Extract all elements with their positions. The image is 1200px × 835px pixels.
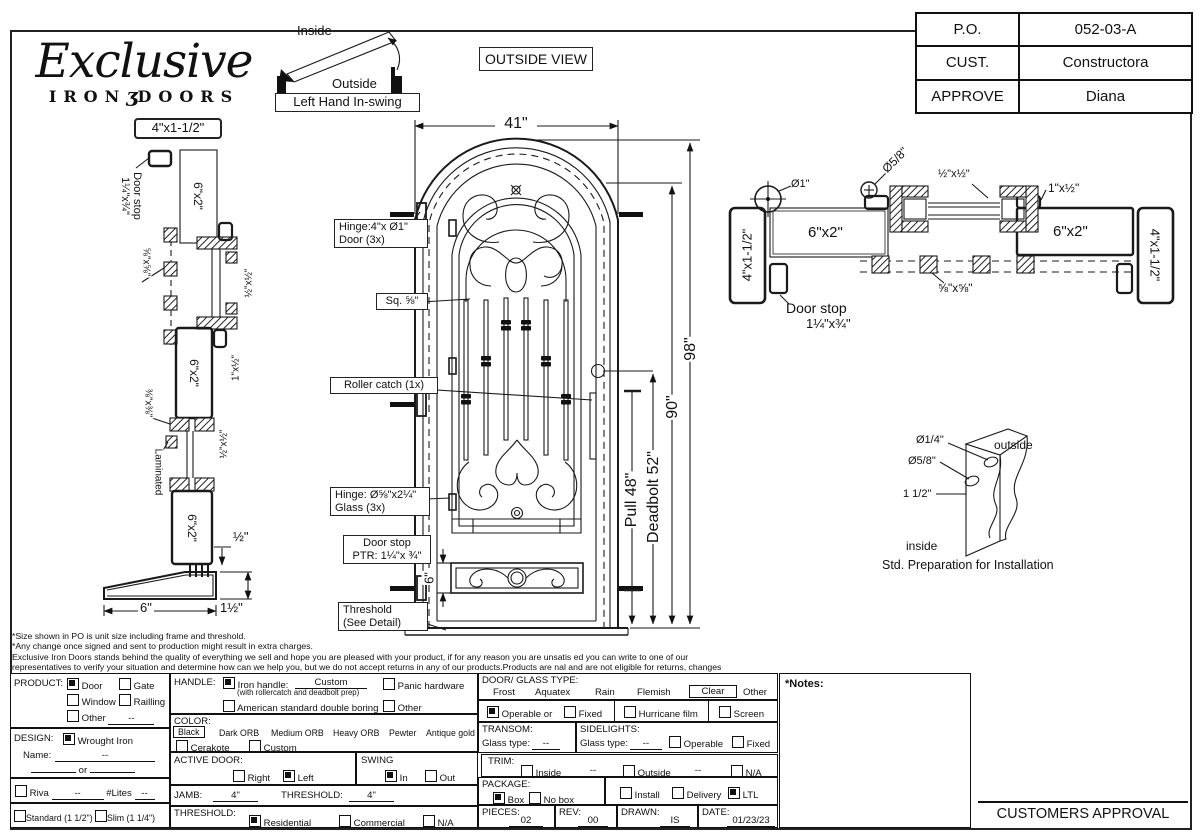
rs-anchor-label: ⅝"x⅝" (938, 282, 973, 296)
checkbox-screen[interactable] (719, 706, 731, 718)
color-heavy-orb[interactable]: Heavy ORB (333, 728, 379, 738)
color-pewter[interactable]: Pewter (389, 728, 416, 738)
checkbox-install[interactable] (620, 787, 632, 799)
lites-label: #Lites (106, 788, 132, 799)
transom-glass-label: Glass type: (482, 738, 530, 749)
checkbox-gate[interactable] (119, 678, 131, 690)
cust-value: Constructora (1019, 46, 1192, 79)
kick-panel-dim: 6" (422, 571, 437, 585)
rs-tube-left-label: 6"x2" (808, 224, 843, 241)
jamb-label: JAMB: (174, 790, 202, 801)
inst-dia58-label: Ø5/8" (908, 455, 936, 468)
checkbox-trim-inside[interactable] (521, 765, 533, 777)
brand-logo: Exclusive IRONʒDOORS (24, 34, 264, 107)
rev-value: 00 (578, 815, 608, 827)
design-name-field[interactable]: -- (55, 750, 155, 762)
jamb-box: JAMB: 4" THRESHOLD: 4" (170, 785, 478, 806)
door-height-total-dim: 98" (682, 336, 700, 361)
design-box: DESIGN: Wrought Iron Name: -- or (10, 728, 170, 778)
operable-divider-2 (708, 701, 709, 723)
product-label: PRODUCT: (14, 678, 63, 689)
checkbox-door[interactable] (67, 678, 79, 690)
checkbox-right[interactable] (233, 770, 245, 782)
checkbox-fixed[interactable] (564, 706, 576, 718)
checkbox-trim-outside[interactable] (623, 765, 635, 777)
handle-label: HANDLE: (174, 677, 216, 688)
trim-inside-field[interactable]: -- (567, 765, 619, 777)
checkbox-panic-hardware[interactable] (383, 678, 395, 690)
checkbox-color-custom[interactable] (249, 740, 261, 752)
date-box: DATE: 01/23/23 (698, 805, 778, 828)
checkbox-riva[interactable] (15, 785, 27, 797)
glass-rain[interactable]: Rain (595, 687, 615, 698)
rs-frame-left-label: 4"x1-1/2" (740, 228, 755, 283)
pieces-box: PIECES: 02 (478, 805, 555, 828)
approval-signature-line[interactable] (978, 801, 1188, 803)
shipping-box: Install Delivery LTL (605, 777, 778, 805)
inst-outside-label: outside (994, 439, 1033, 453)
swing-box: SWING In Out (356, 752, 478, 785)
checkbox-handle-other[interactable] (383, 700, 395, 712)
brand-name: Exclusive (24, 34, 264, 89)
roller-catch-callout: Roller catch (1x) (330, 377, 438, 394)
operable-divider-1 (614, 701, 615, 723)
door-width-dim: 41" (495, 115, 537, 133)
left-frame-size-label: 4"x1-1/2" (134, 118, 222, 139)
glass-frost[interactable]: Frost (493, 687, 515, 698)
rs-doorstop-label: Door stop (786, 300, 847, 316)
checkbox-window[interactable] (67, 694, 79, 706)
hinge-glass-callout: Hinge: Ø⅝"x2¼"Glass (3x) (330, 487, 430, 516)
riva-field[interactable]: -- (52, 788, 104, 800)
checkbox-product-other[interactable] (67, 710, 79, 722)
approve-value: Diana (1019, 80, 1192, 113)
sidelights-box: SIDELIGHTS: Glass type: -- Operable Fixe… (576, 722, 778, 753)
glass-other[interactable]: Other (743, 687, 767, 698)
checkbox-commercial[interactable] (339, 815, 351, 827)
glass-flemish[interactable]: Flemish (637, 687, 671, 698)
jamb-threshold-label: THRESHOLD: (281, 790, 343, 801)
swing-label: SWING (361, 755, 394, 766)
view-label: OUTSIDE VIEW (479, 47, 593, 71)
trim-box: TRIM: Inside -- Outside -- N/A (481, 754, 778, 777)
approve-label: APPROVE (916, 80, 1019, 113)
glass-type-box: DOOR/ GLASS TYPE: Frost Aquatex Rain Fle… (478, 673, 778, 700)
color-antique-gold[interactable]: Antique gold (426, 728, 475, 738)
notes-label: *Notes: (785, 678, 824, 690)
left-glass-stop-label: ½"x½" (219, 429, 230, 460)
left-transom-tube-label: ½"x½" (244, 268, 255, 299)
inst-caption: Std. Preparation for Installation (882, 558, 1054, 572)
or-rule-left (31, 771, 76, 773)
design-label: DESIGN: (14, 733, 53, 744)
trim-outside-field[interactable]: -- (674, 765, 722, 777)
color-black-option[interactable]: Black (173, 726, 205, 738)
glass-clear-option[interactable]: Clear (689, 685, 737, 698)
riva-box: Riva -- #Lites -- (10, 778, 170, 803)
approval-label: CUSTOMERS APPROVAL (978, 806, 1188, 822)
checkbox-railling[interactable] (119, 694, 131, 706)
rev-box: REV: 00 (555, 805, 617, 828)
or-rule-right (90, 771, 135, 773)
sidelights-glass-label: Glass type: (580, 738, 628, 749)
pieces-value: 02 (509, 815, 543, 827)
product-box: PRODUCT: Door Gate Window Railling Other… (10, 673, 170, 728)
checkbox-residential[interactable] (249, 815, 261, 827)
drawing-sheet: Exclusive IRONʒDOORS Inside Outside Left… (0, 0, 1200, 835)
left-threshold-height-dim: 1½" (220, 601, 243, 616)
or-label: or (79, 765, 88, 776)
door-stop-callout: Door stopPTR: 1¼"x ¾" (343, 535, 431, 564)
cust-label: CUST. (916, 46, 1019, 79)
date-value: 01/23/23 (727, 815, 775, 827)
transom-label: TRANSOM: (482, 724, 533, 735)
checkbox-standard[interactable] (14, 810, 26, 822)
left-tube-bottom-label: 6"x2" (185, 513, 199, 543)
checkbox-american-boring[interactable] (223, 700, 235, 712)
left-tube-top-label: 6"x2" (191, 181, 205, 211)
po-label: P.O. (916, 13, 1019, 46)
trim-label: TRIM: (488, 756, 514, 767)
lites-field[interactable]: -- (135, 788, 155, 800)
swing-caption: Left Hand In-swing (275, 93, 420, 112)
active-door-label: ACTIVE DOOR: (174, 755, 243, 766)
threshold-box: THRESHOLD: Residential Commercial N/A (170, 806, 478, 828)
color-medium-orb[interactable]: Medium ORB (271, 728, 324, 738)
po-table: P.O. 052-03-A CUST. Constructora APPROVE… (915, 12, 1193, 114)
checkbox-trim-na[interactable] (731, 765, 743, 777)
left-threshold-width-dim: 6" (138, 601, 154, 616)
rs-tube-right-label: 6"x2" (1053, 223, 1088, 240)
left-rail-bottom-label: ⅜"x⅜" (143, 388, 154, 419)
brand-subtitle: IRONʒDOORS (24, 83, 264, 107)
drawn-value: IS (660, 815, 690, 827)
checkbox-in[interactable] (385, 770, 397, 782)
rs-doorstop-size-label: 1¼"x¾" (806, 317, 851, 332)
left-anchor-label: ⅝"x⅝" (141, 247, 152, 278)
checkbox-operable[interactable] (487, 706, 499, 718)
threshold-callout: Threshold(See Detail) (338, 602, 428, 631)
checkbox-no-box[interactable] (529, 792, 541, 804)
checkbox-wrought-iron[interactable] (63, 733, 75, 745)
date-label: DATE: (702, 807, 730, 818)
left-doorstop-label: Door stop1¼"x¾" (119, 171, 143, 221)
package-label: PACKAGE: (482, 779, 530, 790)
left-glass-label: Laminated (153, 448, 164, 497)
sidelights-glass-field[interactable]: -- (630, 738, 662, 750)
checkbox-delivery[interactable] (672, 787, 684, 799)
jamb-threshold-field[interactable]: 4" (349, 790, 394, 802)
active-door-box: ACTIVE DOOR: Right Left (170, 752, 356, 785)
checkbox-sidelight-fixed[interactable] (732, 736, 744, 748)
checkbox-left[interactable] (283, 770, 295, 782)
swing-inside-label: Inside (297, 24, 332, 39)
transom-box: TRANSOM: Glass type: -- (478, 722, 576, 753)
scroll-glyph-icon: ʒ (126, 83, 137, 107)
checkbox-hurricane-film[interactable] (624, 706, 636, 718)
deadbolt-dim: Deadbolt 52" (645, 450, 663, 544)
package-box: PACKAGE: Box No box (478, 777, 605, 805)
transom-glass-field[interactable]: -- (532, 738, 560, 750)
left-tube-mid-label: 6"x2" (187, 358, 201, 388)
rs-stop-small-label: 1"x½" (1048, 182, 1079, 196)
rs-frame-right-label: 4"x1-1/2" (1148, 228, 1163, 283)
profile-box: Standard (1 1/2") Slim (1 1/4") (10, 803, 170, 828)
swing-outside-label: Outside (332, 77, 377, 92)
checkbox-box[interactable] (493, 792, 505, 804)
drawn-label: DRAWN: (621, 807, 660, 818)
left-gap-dim: ½" (233, 530, 248, 545)
checkbox-out[interactable] (425, 770, 437, 782)
po-value: 052-03-A (1019, 13, 1192, 46)
hinge-door-callout: Hinge:4"x Ø1"Door (3x) (334, 219, 428, 248)
threshold-label: THRESHOLD: (174, 808, 236, 819)
checkbox-cerakote[interactable] (176, 740, 188, 752)
product-other-field[interactable]: -- (108, 713, 154, 725)
color-dark-orb[interactable]: Dark ORB (219, 728, 259, 738)
color-box: COLOR: Black Dark ORB Medium ORB Heavy O… (170, 714, 478, 752)
checkbox-slim[interactable] (95, 810, 107, 822)
operable-box: Operable or Fixed Hurricane film Screen (478, 700, 778, 722)
jamb-field[interactable]: 4" (213, 790, 258, 802)
glass-type-label: DOOR/ GLASS TYPE: (482, 675, 578, 686)
checkbox-ltl[interactable] (728, 787, 740, 799)
drawn-box: DRAWN: IS (617, 805, 698, 828)
inst-offset-label: 1 1/2" (903, 488, 931, 501)
square-bar-callout: Sq. ⅝" (376, 293, 428, 310)
rs-transom-tube-label: ½"x½" (938, 168, 970, 181)
door-height-dim: 90" (664, 394, 682, 419)
checkbox-sidelight-operable[interactable] (669, 736, 681, 748)
pull-dim: Pull 48" (623, 472, 641, 529)
design-name-label: Name: (23, 750, 51, 761)
inst-inside-label: inside (906, 540, 937, 554)
sidelights-label: SIDELIGHTS: (580, 724, 640, 735)
handle-box: HANDLE: Iron handle: Custom (with roller… (170, 673, 478, 714)
inst-dia14-label: Ø1/4" (916, 434, 944, 447)
rs-dia1-label: Ø1" (791, 178, 810, 191)
checkbox-iron-handle[interactable] (223, 677, 235, 689)
checkbox-threshold-na[interactable] (423, 815, 435, 827)
handle-note: (with rollercatch and deadbolt prep) (237, 688, 359, 697)
left-stop-small-label: 1"x½" (231, 354, 242, 382)
notes-box[interactable]: *Notes: (779, 673, 971, 828)
glass-aquatex[interactable]: Aquatex (535, 687, 570, 698)
